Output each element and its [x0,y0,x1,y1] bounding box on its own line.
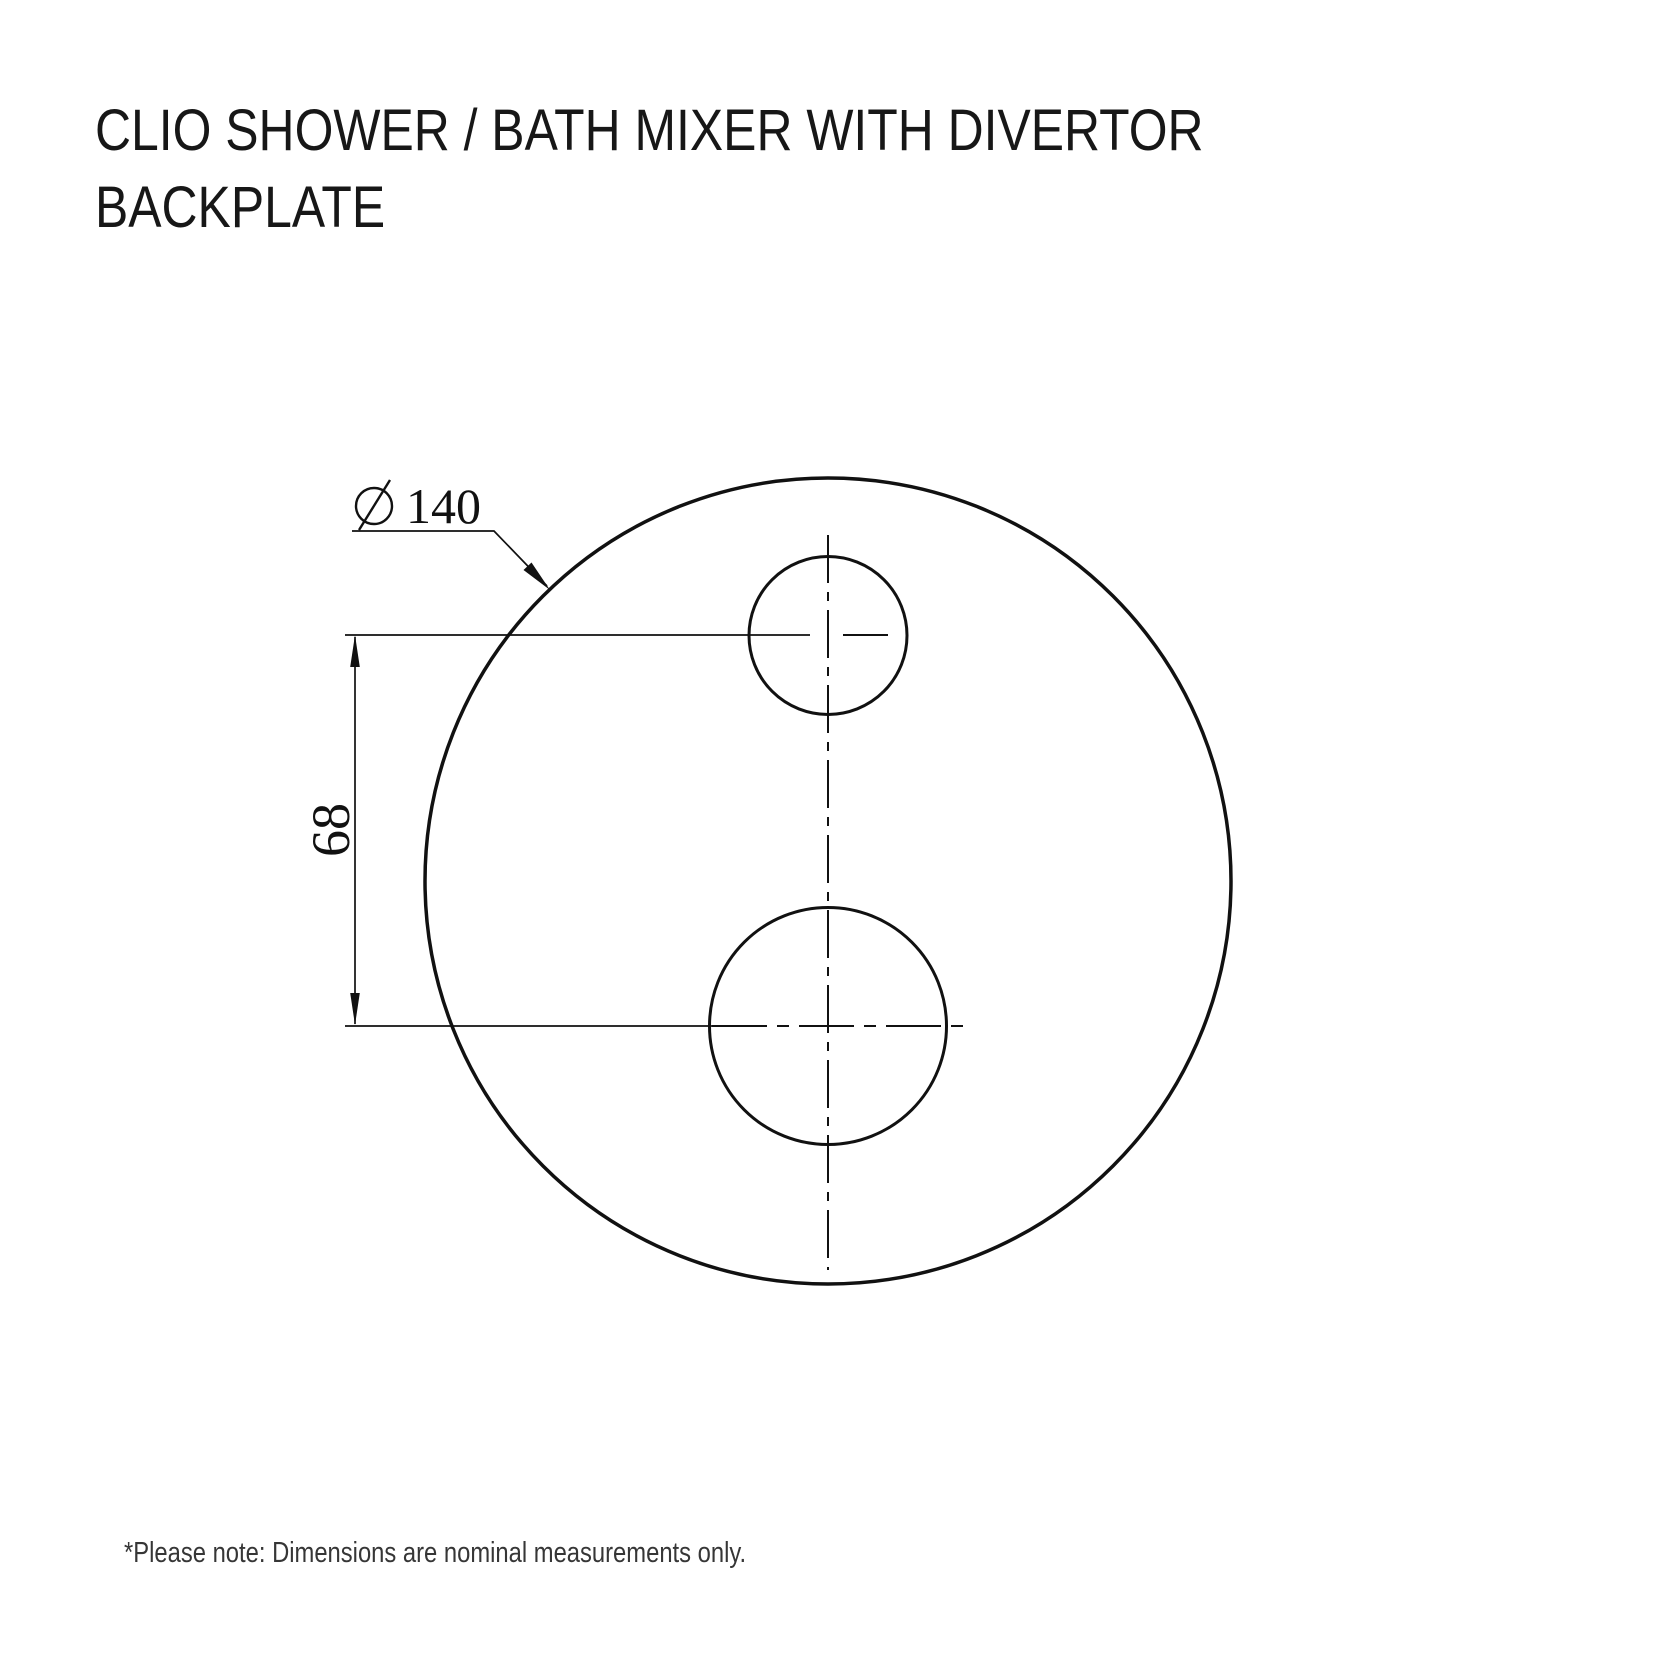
dim-68-value: 68 [301,803,361,857]
diameter-symbol-icon [356,480,392,530]
dim-68-arrowhead-top [350,635,360,667]
dim-68-arrowhead-bottom [350,993,360,1025]
diameter-leader-line [352,531,547,586]
dim-diameter-value: 140 [406,478,481,534]
technical-drawing-page: CLIO SHOWER / BATH MIXER WITH DIVERTOR B… [0,0,1667,1667]
diameter-leader-arrowhead [524,563,551,591]
backplate-technical-drawing: 68 140 [0,0,1667,1667]
dimensions-note: *Please note: Dimensions are nominal mea… [124,1537,746,1570]
